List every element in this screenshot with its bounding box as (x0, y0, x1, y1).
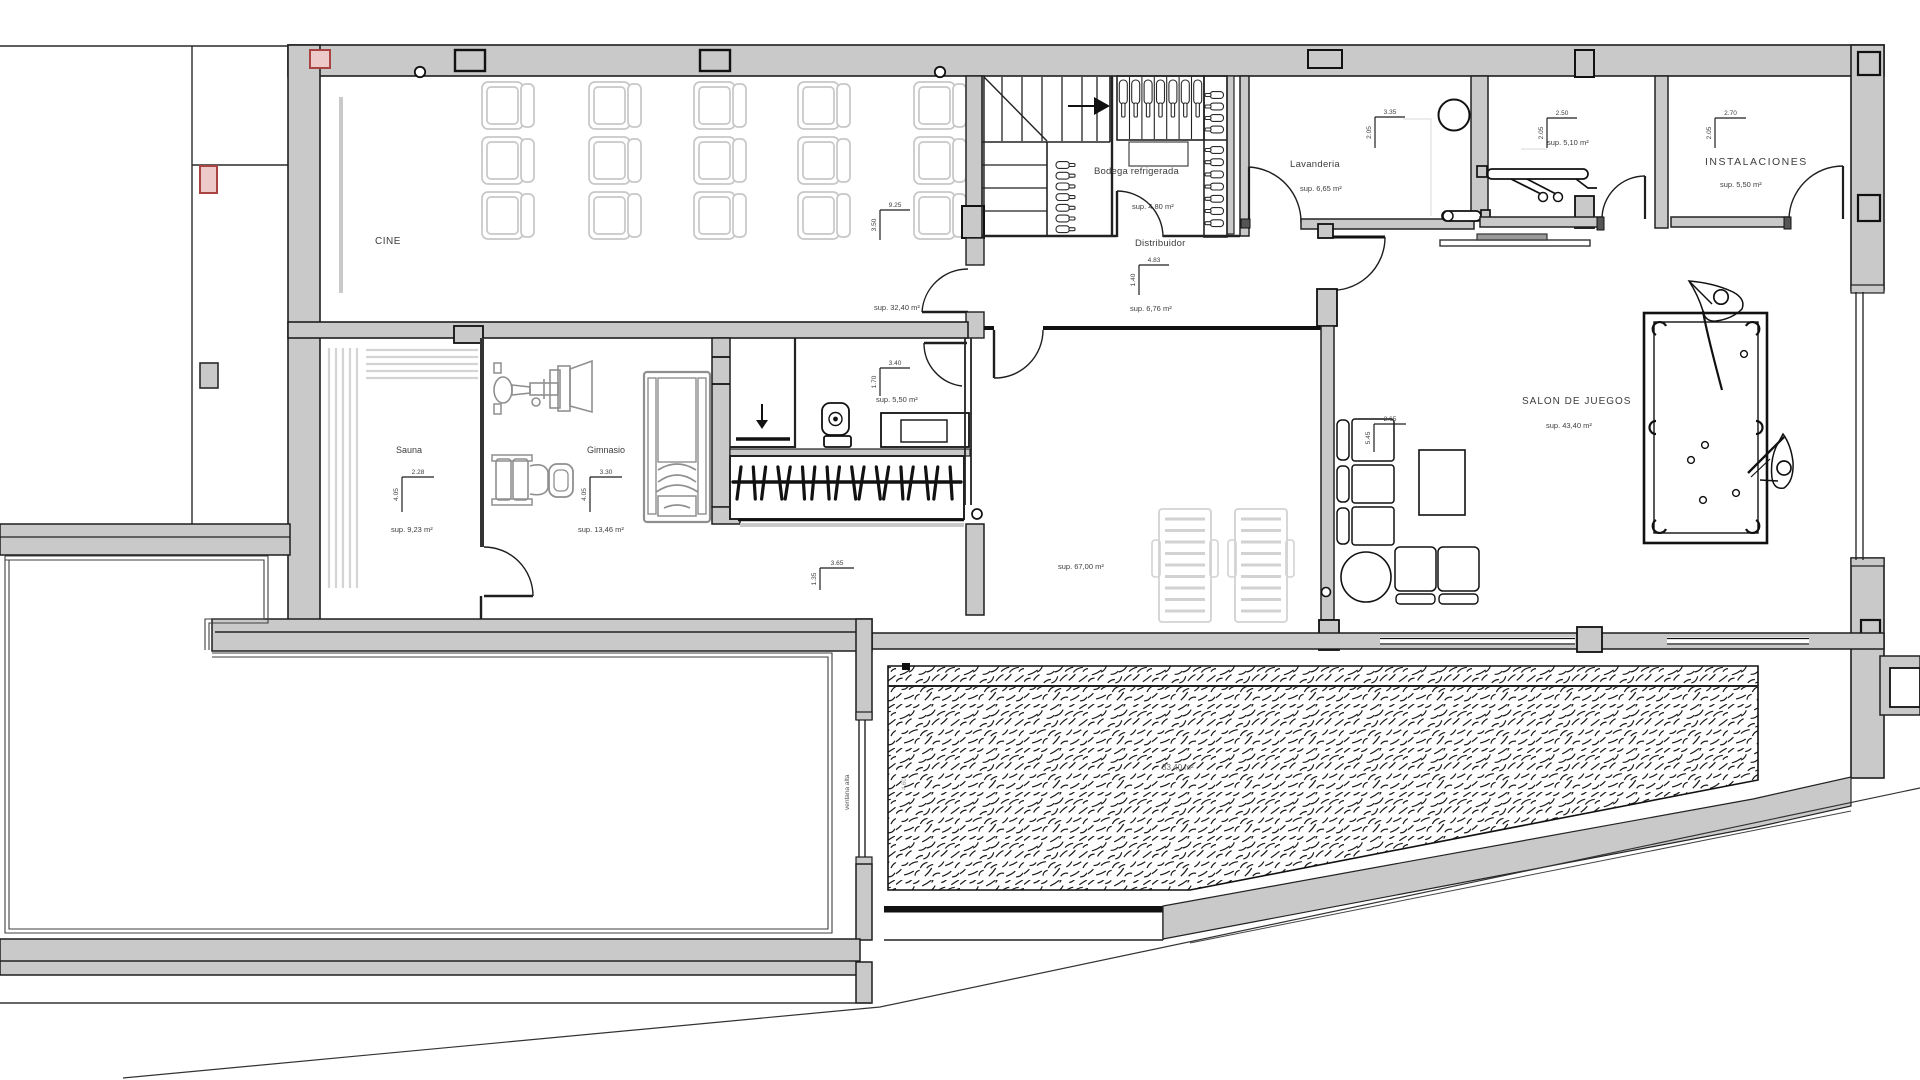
svg-text:sup. 4,80 m²: sup. 4,80 m² (1132, 202, 1174, 211)
svg-text:1.40: 1.40 (1130, 273, 1137, 286)
svg-text:sup. 67,00 m²: sup. 67,00 m² (1058, 562, 1104, 571)
svg-text:33,40 m²: 33,40 m² (1162, 763, 1194, 772)
svg-text:SALON DE JUEGOS: SALON DE JUEGOS (1522, 396, 1631, 407)
svg-text:3.30: 3.30 (600, 469, 613, 476)
svg-text:INSTALACIONES: INSTALACIONES (1705, 156, 1808, 168)
svg-text:2.05: 2.05 (1366, 126, 1373, 139)
svg-text:sup. 32,40 m²: sup. 32,40 m² (874, 303, 920, 312)
svg-text:sup. 13,46 m²: sup. 13,46 m² (578, 525, 624, 534)
svg-text:Lavanderia: Lavanderia (1290, 159, 1340, 170)
svg-text:ventana alta: ventana alta (844, 774, 851, 810)
svg-text:3.35: 3.35 (1384, 109, 1397, 116)
svg-text:4.83: 4.83 (1148, 257, 1161, 264)
svg-text:Distribuidor: Distribuidor (1135, 238, 1185, 249)
svg-text:5.45: 5.45 (1365, 431, 1372, 444)
svg-text:4.05: 4.05 (581, 488, 588, 501)
svg-text:3.40: 3.40 (889, 360, 902, 367)
svg-text:sup. 5,10 m²: sup. 5,10 m² (1547, 138, 1589, 147)
svg-text:Gimnasio: Gimnasio (587, 445, 625, 455)
svg-text:CINE: CINE (375, 236, 401, 247)
svg-text:4.05: 4.05 (393, 488, 400, 501)
svg-text:3.50: 3.50 (871, 218, 878, 231)
svg-text:2.05: 2.05 (1538, 126, 1545, 139)
svg-text:Bodega refrigerada: Bodega refrigerada (1094, 166, 1179, 177)
svg-text:3.65: 3.65 (831, 560, 844, 567)
svg-text:sup. 5,50 m²: sup. 5,50 m² (876, 395, 918, 404)
svg-text:2.50: 2.50 (1556, 110, 1569, 117)
svg-text:sup. 9,23 m²: sup. 9,23 m² (391, 525, 433, 534)
svg-text:sup. 6,65 m²: sup. 6,65 m² (1300, 184, 1342, 193)
svg-text:2.28: 2.28 (412, 469, 425, 476)
svg-text:9.25: 9.25 (889, 202, 902, 209)
svg-text:2.65: 2.65 (1384, 416, 1397, 423)
svg-text:sup. 5,50 m²: sup. 5,50 m² (1720, 180, 1762, 189)
svg-text:1.70: 1.70 (871, 375, 878, 388)
svg-text:1.35: 1.35 (811, 572, 818, 585)
svg-text:4.60: 4.60 (902, 778, 908, 790)
svg-text:sup. 43,40 m²: sup. 43,40 m² (1546, 421, 1592, 430)
svg-text:2.70: 2.70 (1724, 110, 1737, 117)
svg-text:2.05: 2.05 (1706, 126, 1713, 139)
svg-text:Sauna: Sauna (396, 445, 422, 455)
svg-text:sup. 6,76 m²: sup. 6,76 m² (1130, 304, 1172, 313)
